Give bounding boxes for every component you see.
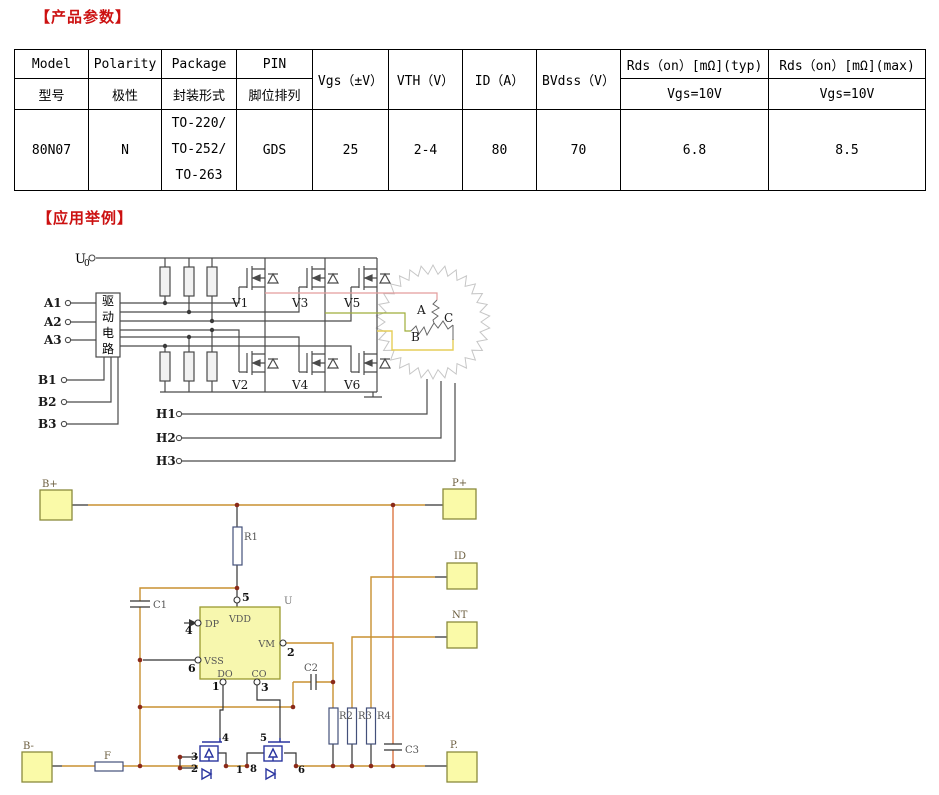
col-package-en: Package bbox=[162, 50, 237, 79]
driver-char-2: 动 bbox=[102, 310, 114, 324]
cell-bvdss: 70 bbox=[537, 110, 621, 191]
ic-pin1-number: 1 bbox=[212, 680, 220, 693]
terminal-p-minus-label: P. bbox=[450, 740, 458, 751]
r2-label: R2 bbox=[339, 711, 353, 722]
q2-gate-pin-number: 5 bbox=[260, 733, 267, 744]
table-row: 80N07 N TO-220/ TO-252/ TO-263 GDS 25 2-… bbox=[15, 110, 926, 191]
col-pin-en: PIN bbox=[237, 50, 313, 79]
mosfet-v6-label: V6 bbox=[343, 378, 360, 392]
cell-vth: 2-4 bbox=[389, 110, 463, 191]
u0-subscript: 0 bbox=[84, 259, 90, 269]
ic-ref-label: U bbox=[284, 596, 292, 607]
ic-pin-vm-label: VM bbox=[257, 639, 275, 650]
mosfet-v1-label: V1 bbox=[231, 296, 248, 310]
output-mosfet-pair bbox=[200, 738, 290, 779]
hall-h2-label: H2 bbox=[156, 431, 176, 445]
mosfet-v2-label: V2 bbox=[231, 378, 248, 392]
col-model-zh: 型号 bbox=[15, 79, 89, 110]
controller-circuit-diagram: B+ P+ ID NT B- P. F U R1 C1 C2 R2 R3 R4 … bbox=[0, 475, 939, 795]
q2-source-pin-number: 6 bbox=[298, 765, 305, 776]
q2-drain-pin-number: 8 bbox=[250, 764, 257, 775]
cell-rds-max: 8.5 bbox=[769, 110, 926, 191]
col-bvdss: BVdss（V） bbox=[537, 50, 621, 110]
col-pin-zh: 脚位排列 bbox=[237, 79, 313, 110]
r4-label: R4 bbox=[377, 711, 391, 722]
input-a1-label: A1 bbox=[43, 296, 62, 310]
bridge-wiring bbox=[67, 258, 455, 461]
phase-b-label: B bbox=[411, 330, 420, 344]
r3-label: R3 bbox=[358, 711, 372, 722]
driver-char-3: 电 bbox=[102, 326, 114, 340]
mosfet-v5-label: V5 bbox=[343, 296, 360, 310]
c2-label: C2 bbox=[304, 663, 318, 674]
gate-resistors bbox=[160, 267, 217, 381]
motor-ring bbox=[376, 265, 489, 379]
col-rds-max: Rds（on）[mΩ](max) bbox=[769, 50, 926, 79]
ic-pin2-number: 2 bbox=[287, 646, 295, 659]
q1-gate-pin-number: 4 bbox=[222, 733, 229, 744]
motor-drive-circuit-diagram: 驱 动 电 路 U 0 A1 A2 A3 B1 B2 B3 H1 H2 H3 bbox=[0, 232, 939, 477]
phase-c-label: C bbox=[444, 311, 453, 325]
ic-pin6-number: 6 bbox=[188, 662, 196, 675]
r1-label: R1 bbox=[244, 532, 258, 543]
q1-source-pin2-number: 2 bbox=[191, 764, 198, 775]
terminal-b-plus-label: B+ bbox=[42, 479, 58, 490]
col-polarity-zh: 极性 bbox=[89, 79, 162, 110]
cell-id: 80 bbox=[463, 110, 537, 191]
input-b2-label: B2 bbox=[38, 395, 57, 409]
ic-pin5-number: 5 bbox=[242, 591, 250, 604]
phase-a-label: A bbox=[416, 303, 426, 317]
col-vth: VTH（V） bbox=[389, 50, 463, 110]
cell-pin: GDS bbox=[237, 110, 313, 191]
terminal-nt-label: NT bbox=[452, 610, 468, 621]
hall-h3-label: H3 bbox=[156, 454, 176, 468]
ic-pin3-number: 3 bbox=[261, 681, 269, 694]
cell-vgs: 25 bbox=[313, 110, 389, 191]
phase-b-wire bbox=[325, 313, 411, 331]
col-rds-typ: Rds（on）[mΩ](typ) bbox=[621, 50, 769, 79]
col-rds-typ-cond: Vgs=10V bbox=[621, 79, 769, 110]
mosfet-v4-label: V4 bbox=[291, 378, 309, 392]
ic-pin-co-label: CO bbox=[251, 669, 266, 680]
c3-label: C3 bbox=[405, 745, 419, 756]
col-polarity-en: Polarity bbox=[89, 50, 162, 79]
terminal-id-label: ID bbox=[454, 551, 466, 562]
mosfet-v2-symbol bbox=[239, 351, 278, 375]
hall-h1-label: H1 bbox=[156, 407, 176, 421]
col-model-en: Model bbox=[15, 50, 89, 79]
cell-package: TO-220/ TO-252/ TO-263 bbox=[162, 110, 237, 191]
cell-rds-typ: 6.8 bbox=[621, 110, 769, 191]
driver-char-4: 路 bbox=[102, 341, 114, 356]
datasheet-page: 【产品参数】 【应用举例】 Model Polarity Package PIN… bbox=[0, 0, 939, 795]
mosfet-v3-symbol bbox=[299, 266, 338, 290]
ic-pin-vdd-label: VDD bbox=[228, 614, 251, 625]
u0-terminal bbox=[89, 255, 95, 261]
fuse-label: F bbox=[104, 751, 111, 762]
section-title-application-examples: 【应用举例】 bbox=[37, 207, 133, 228]
product-parameters-table: Model Polarity Package PIN Vgs（±V） VTH（V… bbox=[14, 49, 926, 191]
driver-char-1: 驱 bbox=[102, 294, 114, 308]
col-vgs: Vgs（±V） bbox=[313, 50, 389, 110]
mosfet-v3-label: V3 bbox=[291, 296, 308, 310]
mosfet-v4-symbol bbox=[299, 351, 338, 375]
mosfet-v5-symbol bbox=[351, 266, 390, 290]
cell-polarity: N bbox=[89, 110, 162, 191]
input-b3-label: B3 bbox=[38, 417, 57, 431]
ic-pin-dp-label: DP bbox=[205, 619, 220, 630]
col-package-zh: 封装形式 bbox=[162, 79, 237, 110]
ic-pin-vss-label: VSS bbox=[203, 656, 224, 667]
input-a3-label: A3 bbox=[43, 333, 62, 347]
section-title-product-params: 【产品参数】 bbox=[35, 6, 131, 27]
ic-pin-do-label: DO bbox=[217, 669, 233, 680]
input-b1-label: B1 bbox=[38, 373, 57, 387]
col-id: ID（A） bbox=[463, 50, 537, 110]
col-rds-max-cond: Vgs=10V bbox=[769, 79, 926, 110]
q1-source-pin3-number: 3 bbox=[191, 752, 198, 763]
mosfet-v1-symbol bbox=[239, 266, 278, 290]
input-a2-label: A2 bbox=[43, 315, 62, 329]
terminal-b-minus-label: B- bbox=[23, 741, 34, 752]
terminal-p-plus-label: P+ bbox=[452, 478, 467, 489]
mosfet-v6-symbol bbox=[351, 351, 390, 375]
c1-label: C1 bbox=[153, 600, 167, 611]
ic-pin4-number: 4 bbox=[185, 624, 193, 637]
cell-model: 80N07 bbox=[15, 110, 89, 191]
q1-drain-pin-number: 1 bbox=[236, 765, 243, 776]
